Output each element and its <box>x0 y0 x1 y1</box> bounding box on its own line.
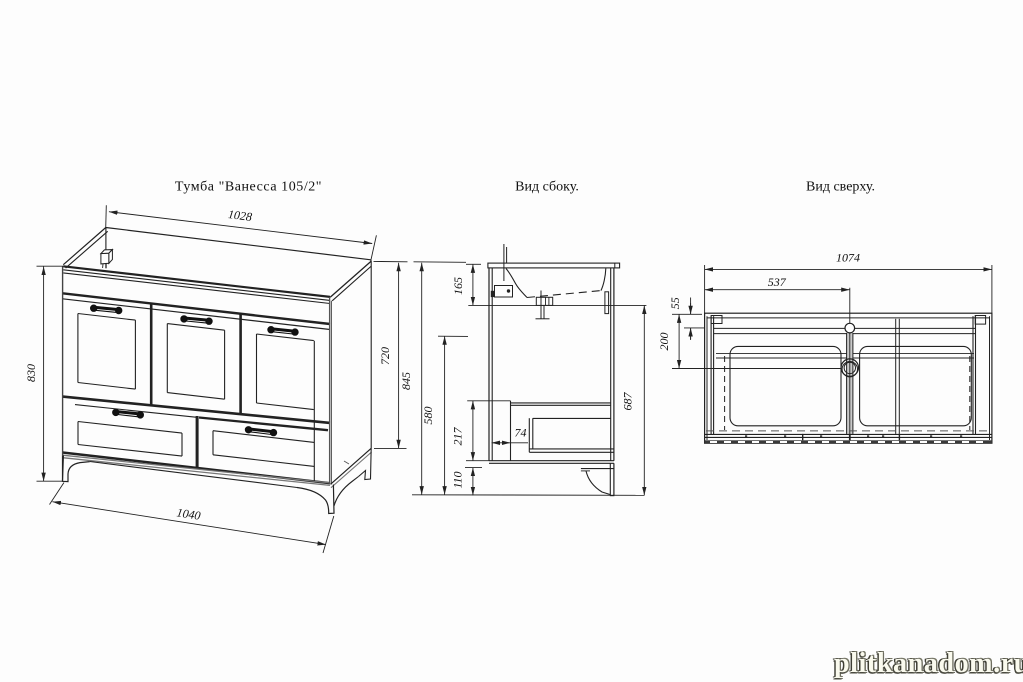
svg-text:Вид сбоку.: Вид сбоку. <box>515 180 579 195</box>
svg-text:1028: 1028 <box>227 207 253 224</box>
svg-text:1074: 1074 <box>836 251 860 265</box>
svg-text:110: 110 <box>450 471 464 488</box>
svg-text:165: 165 <box>451 277 465 295</box>
svg-text:200: 200 <box>657 333 671 351</box>
svg-text:Вид сверху.: Вид сверху. <box>806 180 875 195</box>
svg-text:845: 845 <box>399 372 413 390</box>
svg-text:217: 217 <box>450 427 464 446</box>
svg-text:537: 537 <box>768 275 787 289</box>
svg-text:55: 55 <box>668 297 682 309</box>
svg-text:Тумба "Ванесса 105/2": Тумба "Ванесса 105/2" <box>175 180 322 195</box>
svg-text:580: 580 <box>421 407 435 425</box>
svg-text:74: 74 <box>515 426 527 440</box>
svg-text:720: 720 <box>378 347 392 365</box>
svg-text:687: 687 <box>621 392 635 411</box>
svg-text:830: 830 <box>24 364 38 382</box>
